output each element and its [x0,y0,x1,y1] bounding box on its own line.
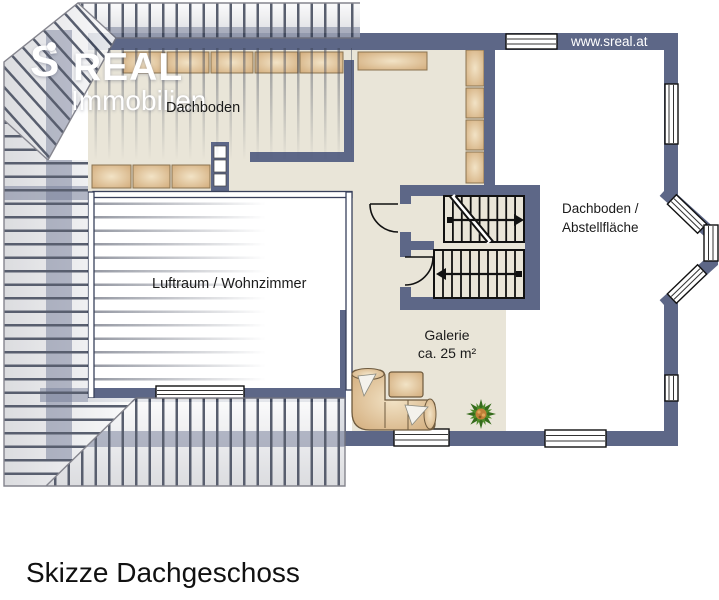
wall-thin-top [93,192,352,198]
wall-right-lower [664,298,678,446]
cabinet [172,165,210,188]
window-bay-middle [704,225,718,261]
roof-band-top [74,3,360,38]
cabinet [133,165,170,188]
wall-stair-right [525,185,540,310]
roof-slope-hatch-wohnzimmer [94,197,266,390]
logo-dot-icon [47,42,56,51]
window-right-lower [665,375,678,401]
stair-start-dot [516,271,522,277]
website-url: www.sreal.at [571,34,648,49]
cabinet [466,50,484,86]
cabinet [92,165,131,188]
floorplan-sketch: S REAL Immobilien www.sreal.at Dachboden… [0,0,719,600]
window-bottom-right [545,430,606,447]
wall-thin-right [346,192,352,390]
room-label-luftraum-wohnzimmer: Luftraum / Wohnzimmer [152,276,306,292]
stair-flight-upper [444,196,524,242]
stair-flight-lower [434,250,524,298]
wall-bottom [340,431,678,446]
wall-stair-left-stub [400,287,411,310]
window-bottom-galerie [394,429,449,446]
room-label-abstellflaeche: Dachboden / Abstellfläche [562,199,639,237]
wall-stair-top [400,185,540,196]
wall-stair-left-stub [400,185,411,204]
room-label-galerie-line2: ca. 25 m² [401,344,493,362]
wall-cabinet-column [484,48,495,185]
logo-brand: REAL [73,48,183,87]
sketch-caption: Skizze Dachgeschoss [26,557,300,589]
window-right-upper [665,84,678,144]
room-label-galerie: Galerie ca. 25 m² [401,326,493,362]
room-label-abstellflaeche-line2: Abstellfläche [562,218,639,237]
plant-icon [466,399,496,429]
room-label-galerie-line1: Galerie [401,326,493,344]
cabinet [466,120,484,150]
wall-thin-left [88,192,94,398]
sofa-armrest [424,399,436,429]
window-top [506,34,557,49]
cabinet [466,152,484,183]
cabinet [466,88,484,118]
room-label-dachboden: Dachboden [166,100,240,116]
room-label-abstellflaeche-line1: Dachboden / [562,199,639,218]
cabinet [358,52,427,70]
wall-stair-left-stub [400,232,411,257]
coffee-table [389,372,423,397]
stair-start-dot [447,217,453,223]
